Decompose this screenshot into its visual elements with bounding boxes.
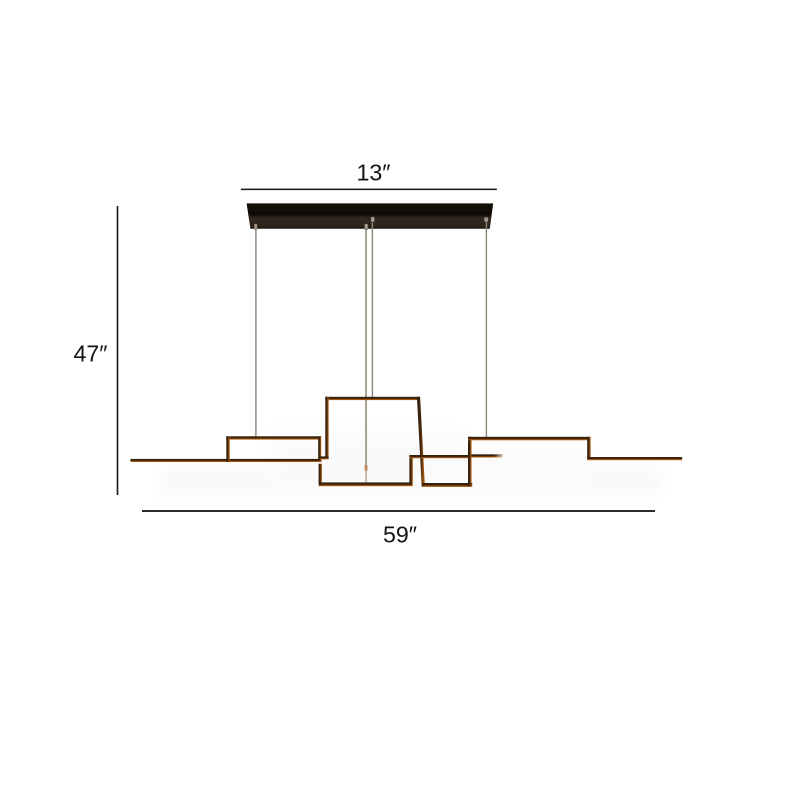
- svg-text:13″: 13″: [356, 160, 390, 186]
- svg-text:47″: 47″: [73, 340, 107, 366]
- svg-text:59″: 59″: [383, 522, 417, 548]
